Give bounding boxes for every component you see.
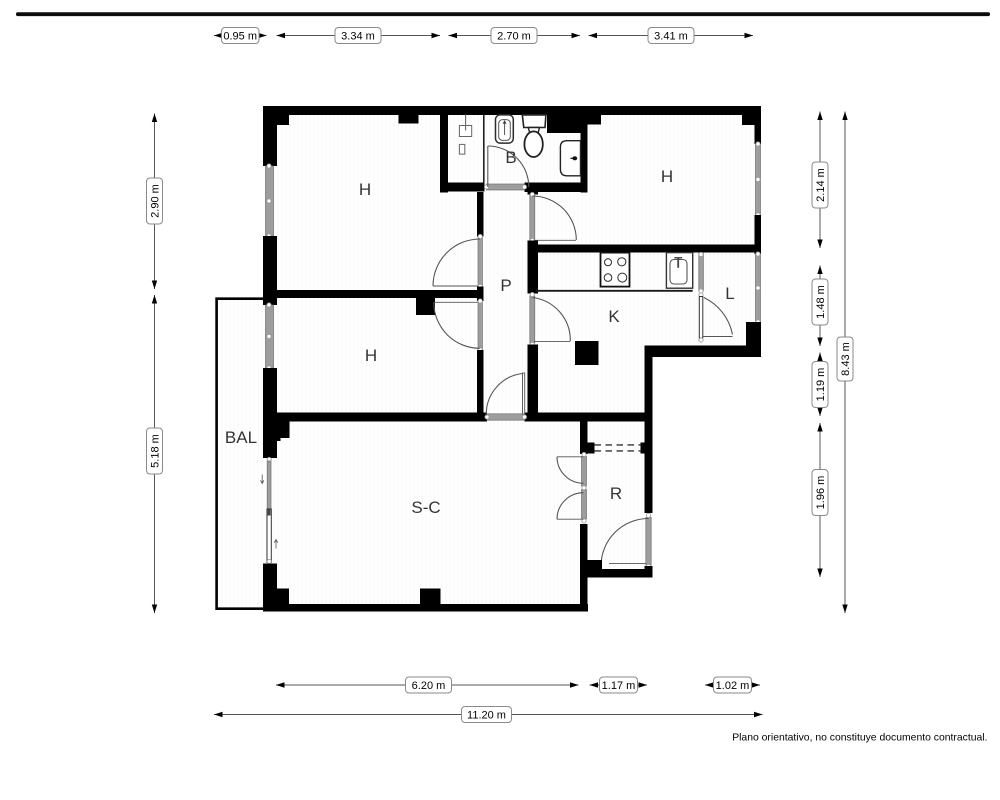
svg-text:H: H — [365, 346, 377, 365]
svg-text:2.14 m: 2.14 m — [815, 168, 827, 202]
svg-text:H: H — [661, 167, 673, 186]
svg-text:8.43 m: 8.43 m — [840, 342, 852, 376]
svg-text:0.95 m: 0.95 m — [223, 30, 257, 42]
svg-text:1.17 m: 1.17 m — [602, 680, 636, 692]
svg-text:2.70 m: 2.70 m — [497, 30, 531, 42]
svg-text:1.19 m: 1.19 m — [815, 368, 827, 402]
svg-text:11.20 m: 11.20 m — [467, 709, 506, 721]
svg-text:3.34 m: 3.34 m — [341, 30, 375, 42]
svg-text:1.96 m: 1.96 m — [815, 476, 827, 510]
svg-text:S-C: S-C — [411, 498, 440, 517]
svg-text:Plano orientativo, no constitu: Plano orientativo, no constituye documen… — [732, 733, 987, 744]
svg-text:H: H — [359, 180, 371, 199]
svg-text:B: B — [505, 148, 516, 167]
svg-text:6.20 m: 6.20 m — [412, 680, 446, 692]
svg-text:L: L — [725, 284, 734, 303]
svg-text:2.90 m: 2.90 m — [149, 184, 161, 218]
svg-text:3.41 m: 3.41 m — [654, 30, 688, 42]
svg-text:1.02 m: 1.02 m — [716, 680, 750, 692]
svg-text:R: R — [610, 484, 622, 503]
svg-text:P: P — [500, 276, 511, 295]
svg-text:K: K — [608, 307, 620, 326]
svg-text:BAL: BAL — [225, 428, 257, 447]
svg-text:1.48 m: 1.48 m — [815, 285, 827, 319]
svg-text:5.18 m: 5.18 m — [149, 434, 161, 468]
